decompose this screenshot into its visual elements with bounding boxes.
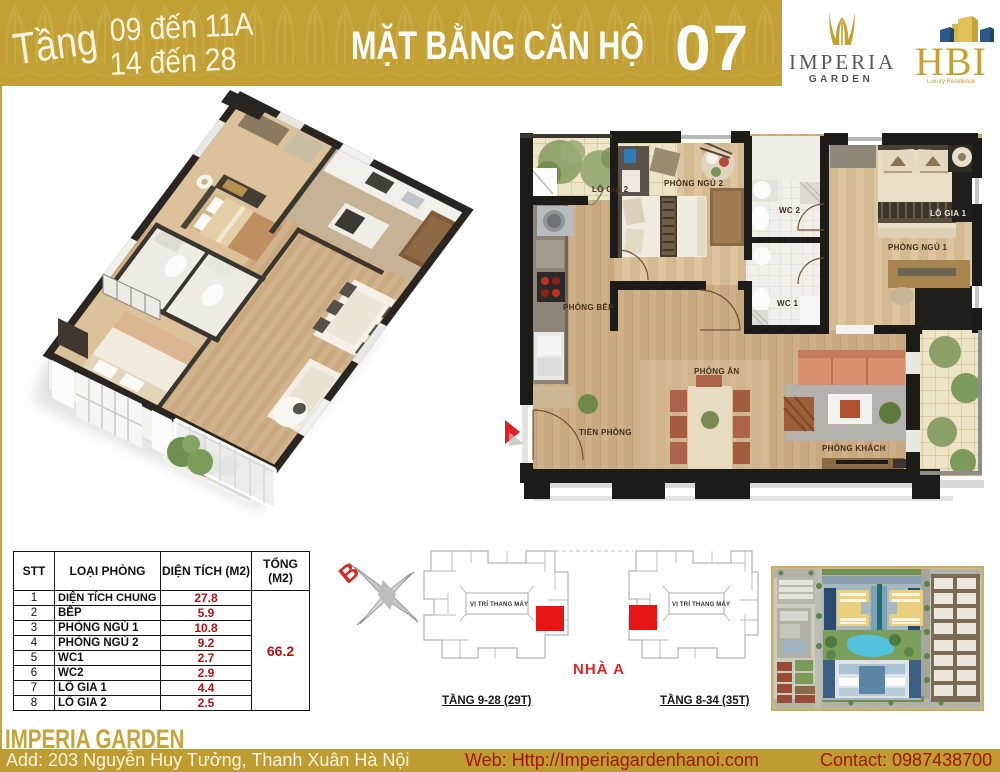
svg-text:PHÒNG NGỦ 1: PHÒNG NGỦ 1 bbox=[888, 243, 948, 252]
svg-text:B: B bbox=[334, 557, 365, 589]
svg-text:LÔ GIA 2: LÔ GIA 2 bbox=[592, 185, 629, 194]
svg-text:PHÒNG BẾP: PHÒNG BẾP bbox=[563, 302, 614, 312]
svg-text:WC 1: WC 1 bbox=[777, 299, 798, 308]
svg-text:PHÒNG KHÁCH: PHÒNG KHÁCH bbox=[822, 444, 886, 453]
svg-text:PHÒNG NGỦ 2: PHÒNG NGỦ 2 bbox=[664, 179, 724, 188]
svg-text:LÔ GIA 1: LÔ GIA 1 bbox=[930, 209, 967, 218]
svg-text:WC 2: WC 2 bbox=[779, 206, 800, 215]
svg-text:PHÒNG ĂN: PHÒNG ĂN bbox=[694, 367, 740, 376]
svg-text:VỊ TRÍ THANG MÁY: VỊ TRÍ THANG MÁY bbox=[470, 600, 528, 608]
svg-text:VỊ TRÍ THANG MÁY: VỊ TRÍ THANG MÁY bbox=[672, 600, 730, 608]
svg-text:TIỀN PHÒNG: TIỀN PHÒNG bbox=[579, 427, 632, 437]
